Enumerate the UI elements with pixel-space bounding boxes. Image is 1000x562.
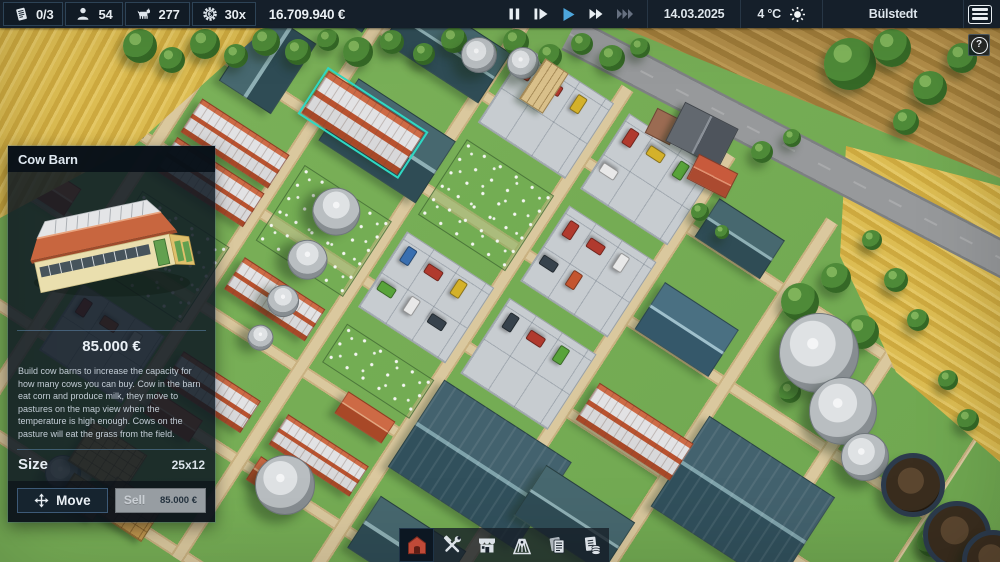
panel-title: Cow Barn [8,146,215,172]
toolbar-item-finances[interactable] [574,528,609,562]
carport-roof [686,154,738,199]
tree [630,38,650,58]
tree [159,47,185,73]
animal-icon [135,6,152,22]
map-vehicle[interactable] [399,245,418,266]
map-vehicle[interactable] [561,220,580,241]
size-value: 25x12 [172,458,205,472]
fast-forward-button[interactable] [584,5,608,23]
toolbar-item-contracts[interactable] [539,528,574,562]
svg-text:€: € [207,10,212,19]
map-vehicle[interactable] [569,94,588,115]
tree [123,29,157,63]
map-silo[interactable] [255,455,315,515]
size-label: Size [18,456,48,473]
contracts-value: 0/3 [36,7,53,22]
location-display: Bülstedt [822,0,963,28]
toolbar-item-buildings[interactable] [399,528,434,562]
map-building[interactable] [635,282,739,377]
building-preview [8,172,215,330]
pause-icon [508,7,521,21]
building-description: Build cow barns to increase the capacity… [8,361,215,449]
map-vehicle[interactable] [611,252,630,273]
map-vehicle[interactable] [564,270,583,291]
toolbar-item-fields[interactable] [504,528,539,562]
field-pin-icon [511,534,533,556]
question-mark-icon: ? [971,37,988,54]
tree [285,39,311,65]
tools-icon [441,534,463,556]
sell-label: Sell [124,493,145,507]
playback-controls [504,5,639,24]
staff-icon [75,6,91,22]
menu-icon [968,5,992,24]
move-label: Move [56,493,91,508]
play-step-icon [533,7,549,21]
fastest-button[interactable] [612,5,639,23]
tree [599,45,625,71]
date-text: 14.03.2025 [664,7,725,21]
tree [413,43,435,65]
tree [571,33,593,55]
animals-value: 277 [159,7,180,22]
staff-value: 54 [98,7,112,22]
size-row: Size 25x12 [8,450,215,481]
move-icon [34,493,49,508]
move-button[interactable]: Move [17,488,108,513]
help-button[interactable]: ? [968,34,990,56]
stat-animals[interactable]: 277 [125,2,190,26]
top-bar: 0/3 54 277 [0,0,1000,28]
play-button[interactable] [557,5,580,24]
tree [824,38,876,90]
build-toolbar [399,528,609,562]
tree [907,309,929,331]
tree [783,129,801,147]
toolbar-item-market[interactable] [469,528,504,562]
tree [715,225,729,239]
map-vehicle[interactable] [449,278,468,299]
tree [343,37,373,67]
map-silo[interactable] [461,37,497,73]
tree [938,370,958,390]
map-vehicle[interactable] [376,280,397,299]
map-building[interactable] [64,47,169,138]
tree [862,230,882,250]
stat-staff[interactable]: 54 [65,2,122,26]
map-building[interactable] [576,383,694,481]
weather-display: 4 °C [740,0,822,28]
play-icon [561,7,576,22]
tree [224,44,248,68]
map-vehicle[interactable] [402,295,421,316]
documents-icon [546,534,568,556]
tree [884,268,908,292]
map-vehicle[interactable] [551,345,570,366]
panel-footer: Move Sell 85.000 € [8,481,215,522]
money-display: 16.709.940 € [269,7,345,22]
map-vehicle[interactable] [585,237,606,256]
temperature-text: 4 °C [757,7,781,21]
fastest-icon [616,7,635,21]
shop-icon [476,534,498,556]
sun-icon [789,6,806,23]
map-silo[interactable] [242,320,278,356]
stat-production-speed[interactable]: € 30x [192,2,256,26]
barn-icon [406,534,428,556]
tree [751,141,773,163]
map-vehicle[interactable] [423,263,444,282]
location-text: Bülstedt [869,7,917,21]
tree [317,29,339,51]
tree [380,30,404,54]
sell-button[interactable]: Sell 85.000 € [115,488,206,513]
tree [957,409,979,431]
tree [873,29,911,67]
stat-contracts[interactable]: 0/3 [3,2,63,26]
tree [190,29,220,59]
map-vehicle[interactable] [426,313,447,332]
contract-icon [13,6,29,22]
cow-barn-image [19,195,205,307]
map-vehicle[interactable] [598,162,619,181]
tree [893,109,919,135]
date-display: 14.03.2025 [647,0,741,28]
building-price: 85.000 € [8,331,215,361]
map-vehicle[interactable] [501,312,520,333]
tree [252,28,280,56]
money-documents-icon [581,534,603,556]
production-speed-icon: € [202,6,218,22]
menu-button[interactable] [963,0,1000,28]
pause-button[interactable] [504,5,525,23]
map-vehicle[interactable] [538,254,559,273]
sell-price: 85.000 € [160,495,197,506]
map-vehicle[interactable] [525,329,546,348]
tree [821,263,851,293]
speed-value: 30x [225,7,246,22]
game-screen: ? 0/3 54 [0,0,1000,562]
fast-forward-icon [588,7,604,21]
tree [913,71,947,105]
building-info-panel: Cow Barn [8,146,215,522]
play-step-button[interactable] [529,5,553,23]
tree [691,203,709,221]
toolbar-item-machines[interactable] [434,528,469,562]
